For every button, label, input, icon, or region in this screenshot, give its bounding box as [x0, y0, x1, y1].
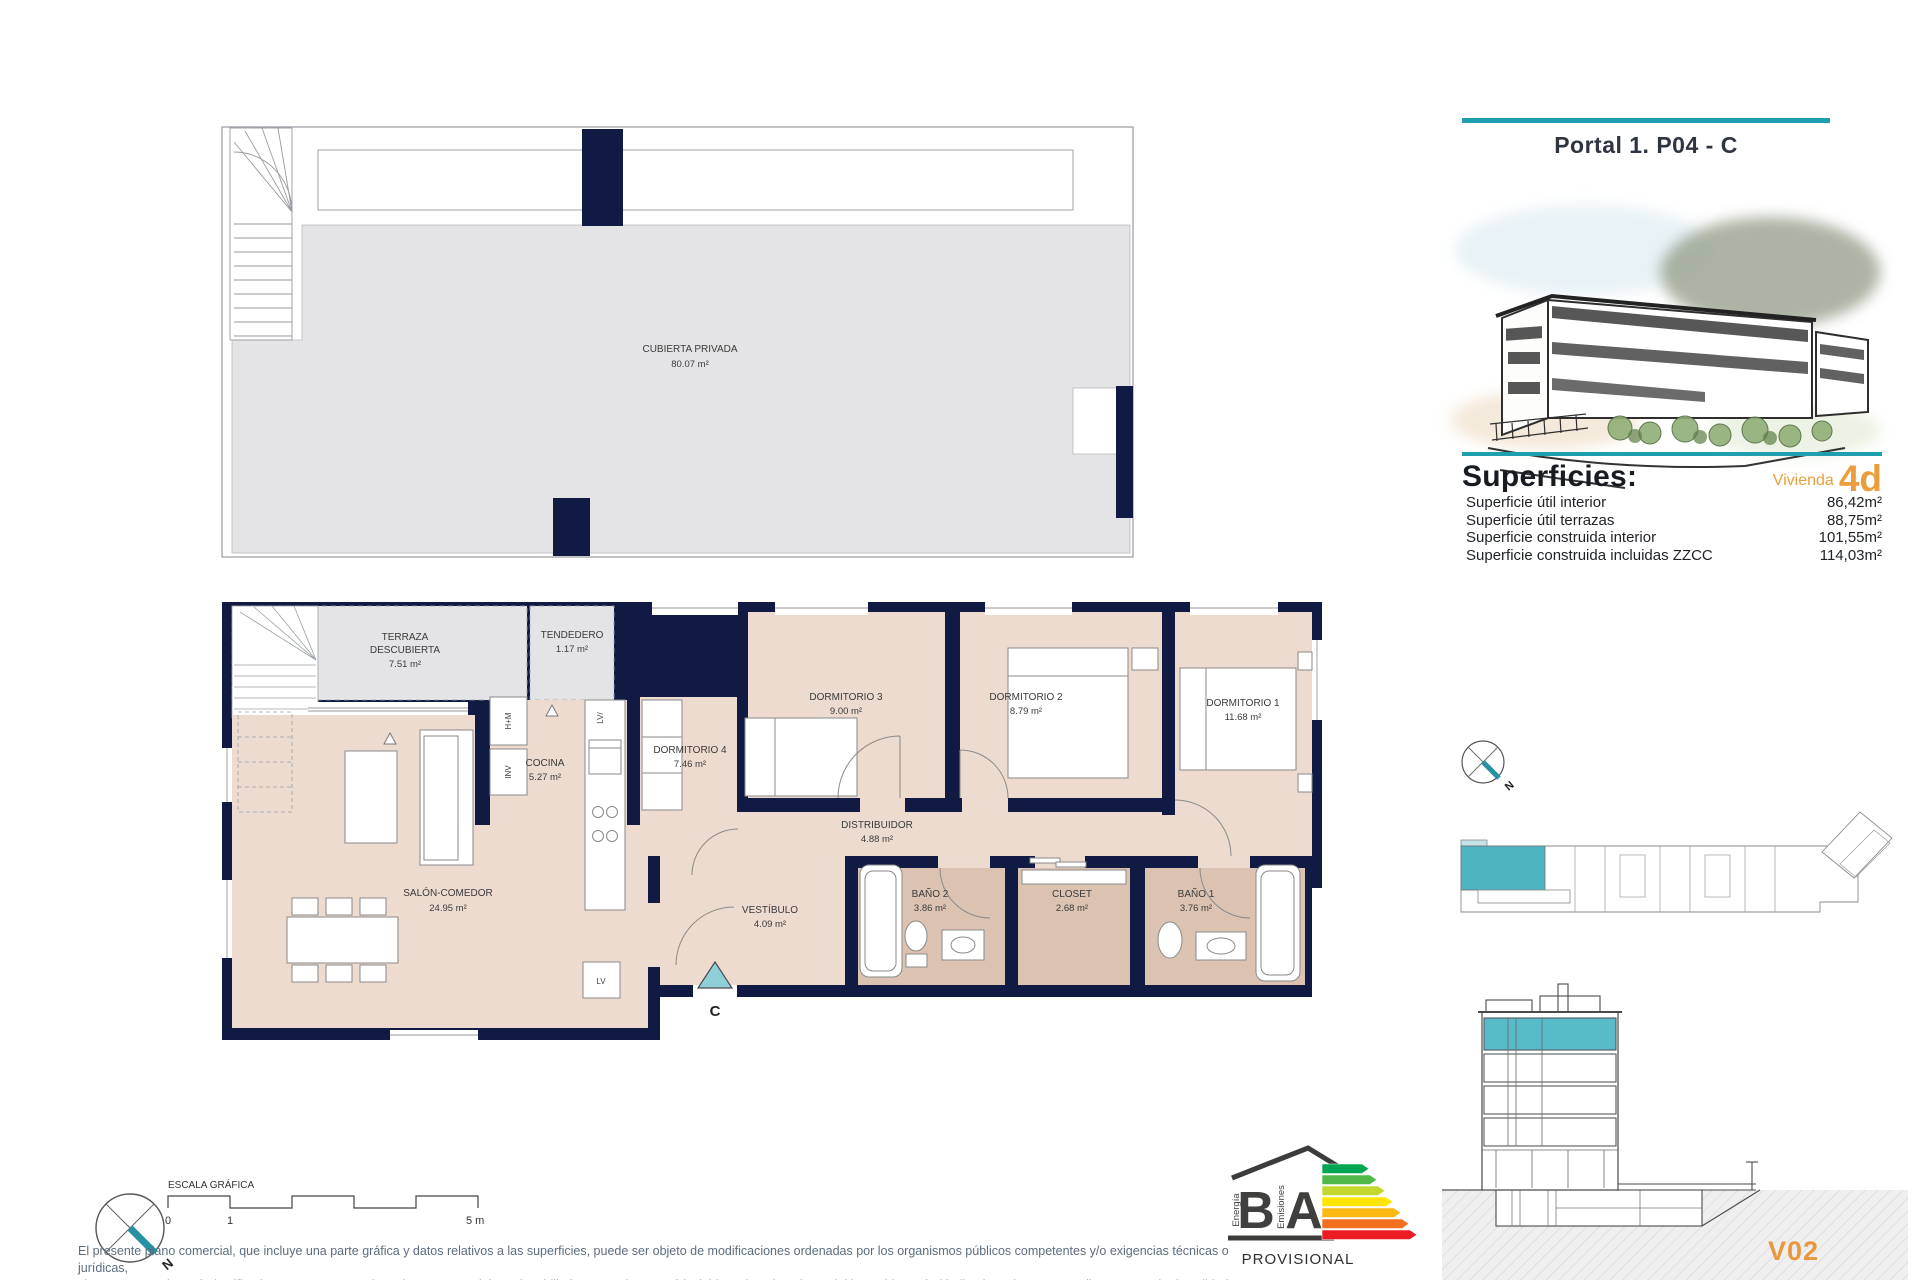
energy-emisiones-label: Emisiones	[1276, 1185, 1287, 1229]
key-plan	[1461, 812, 1892, 912]
label-salon: SALÓN-COMEDOR	[403, 886, 492, 899]
lv-label: LV	[596, 977, 606, 986]
sketch-gable-face	[1502, 300, 1548, 435]
area-terraza: 7.51 m²	[389, 659, 421, 670]
energy-letter-b: B	[1237, 1182, 1275, 1240]
sink-bano2	[942, 930, 984, 960]
superficies-row: Superficie construida incluidas ZZCC 114…	[1462, 547, 1882, 565]
lv-top-label: LV/	[596, 712, 605, 724]
energy-arrow-1	[1322, 1164, 1369, 1174]
scale-0: 0	[165, 1215, 171, 1227]
area-cocina: 5.27 m²	[529, 772, 561, 783]
building-section	[1442, 984, 1908, 1280]
fridge-icon	[589, 740, 621, 774]
energy-energia-label: Energía	[1231, 1193, 1242, 1227]
label-dormitorio4: DORMITORIO 4	[653, 745, 727, 756]
roof-private-deck	[232, 225, 1130, 553]
coffee-table	[345, 751, 397, 843]
vivienda-code: 4d	[1839, 463, 1882, 494]
label-closet: CLOSET	[1052, 889, 1092, 900]
building-illustration	[1450, 205, 1880, 488]
roof-wall-block-right	[1116, 386, 1133, 518]
energy-arrow-2	[1322, 1175, 1377, 1185]
superficies-panel: Superficies: Vivienda 4d Superficie útil…	[1462, 452, 1882, 564]
roof-wall-block-bottom	[553, 498, 590, 556]
area-dormitorio1: 11.68 m²	[1225, 712, 1262, 723]
energy-arrow-4	[1322, 1197, 1393, 1207]
vivienda-label: Vivienda	[1773, 472, 1834, 494]
area-distribuidor: 4.88 m²	[861, 834, 893, 845]
inv-label: INV	[504, 765, 513, 779]
scale-1: 1	[227, 1215, 233, 1227]
vivienda-tag: Vivienda 4d	[1773, 463, 1882, 494]
sup-label-0: Superficie útil interior	[1462, 494, 1606, 512]
plan-drawing: CUBIERTA PRIVADA 80.07 m²	[0, 0, 1920, 1280]
superficies-row: Superficie útil terrazas 88,75m²	[1462, 512, 1882, 530]
sink-bano1	[1196, 932, 1246, 960]
key-plan-balcony	[1478, 890, 1570, 903]
disclaimer-line-1: El presente plano comercial, que incluye…	[78, 1243, 1273, 1277]
room-distribuidor	[640, 812, 1162, 856]
area-dormitorio2: 8.79 m²	[1010, 706, 1042, 717]
room-closet	[1018, 868, 1130, 985]
energy-arrow-7	[1322, 1230, 1417, 1240]
bed-dorm3	[745, 718, 857, 796]
sup-value-3: 114,03m²	[1820, 547, 1882, 565]
floor-stairs	[232, 606, 318, 718]
nightstand-dorm2	[1132, 648, 1158, 670]
energy-letter-a: A	[1285, 1182, 1323, 1240]
sup-label-3: Superficie construida incluidas ZZCC	[1462, 547, 1713, 565]
label-terraza-2: DESCUBIERTA	[370, 645, 441, 656]
superficies-header: Superficies: Vivienda 4d	[1462, 460, 1882, 494]
energy-arrow-6	[1322, 1219, 1409, 1229]
label-vestibulo: VESTÍBULO	[742, 903, 798, 916]
label-bano1: BAÑO 1	[1178, 887, 1215, 900]
label-dormitorio3: DORMITORIO 3	[809, 692, 883, 703]
plan-sheet: CUBIERTA PRIVADA 80.07 m²	[0, 0, 1920, 1280]
superficies-accent-bar	[1462, 452, 1882, 456]
label-dormitorio2: DORMITORIO 2	[989, 692, 1063, 703]
key-plan-unit-highlight	[1461, 846, 1545, 890]
superficies-heading: Superficies:	[1462, 460, 1637, 494]
roof-stairs	[230, 128, 292, 340]
section-roof-details	[1478, 984, 1622, 1012]
energy-arrow-5	[1322, 1208, 1401, 1218]
superficies-row: Superficie útil interior 86,42m²	[1462, 494, 1882, 512]
sidebar-compass-icon: N	[1462, 741, 1517, 793]
plan-code: V02	[1768, 1236, 1819, 1267]
label-cocina: COCINA	[526, 758, 565, 769]
scale-bar: ESCALA GRÁFICA 0 1 5 m	[165, 1178, 484, 1227]
toilet-bano2	[905, 921, 927, 951]
hm-label: H+M	[504, 712, 513, 729]
floor-plan: LV/ H+M INV LV	[222, 602, 1322, 1040]
kitchen-counter	[585, 700, 625, 910]
legal-disclaimer: El presente plano comercial, que incluye…	[78, 1243, 1273, 1280]
area-closet: 2.68 m²	[1056, 903, 1088, 914]
sup-value-0: 86,42m²	[1827, 494, 1882, 512]
area-vestibulo: 4.09 m²	[754, 919, 786, 930]
label-distribuidor: DISTRIBUIDOR	[841, 820, 913, 831]
area-tendedero: 1.17 m²	[556, 644, 588, 655]
header-accent-bar	[1462, 118, 1830, 123]
sup-value-2: 101,55m²	[1819, 529, 1882, 547]
sup-value-1: 88,75m²	[1827, 512, 1882, 530]
page-title: Portal 1. P04 - C	[1462, 132, 1830, 159]
scale-title: ESCALA GRÁFICA	[168, 1178, 254, 1191]
energy-arrows	[1322, 1164, 1417, 1240]
area-dormitorio4: 7.46 m²	[674, 759, 706, 770]
area-salon: 24.95 m²	[429, 903, 467, 914]
roof-notch	[1073, 388, 1118, 454]
entry-label: C	[710, 1003, 721, 1020]
scale-5m: 5 m	[466, 1215, 484, 1227]
scale-bar-steps	[168, 1196, 478, 1208]
sofa-seat	[424, 736, 458, 860]
label-bano2: BAÑO 2	[912, 887, 949, 900]
area-dormitorio3: 9.00 m²	[830, 706, 862, 717]
area-bano2: 3.86 m²	[914, 903, 946, 914]
label-terraza-1: TERRAZA	[382, 632, 429, 643]
sup-label-1: Superficie útil terrazas	[1462, 512, 1614, 530]
roof-top-band	[318, 150, 1073, 210]
bathtub-bano1	[1256, 865, 1300, 981]
roof-plan: CUBIERTA PRIVADA 80.07 m²	[222, 127, 1133, 557]
roof-wall-block-top	[582, 129, 623, 226]
superficies-row: Superficie construida interior 101,55m²	[1462, 529, 1882, 547]
label-tendedero: TENDEDERO	[541, 630, 604, 641]
roof-room-area: 80.07 m²	[671, 359, 709, 370]
roof-room-label: CUBIERTA PRIVADA	[642, 344, 737, 355]
sidebar-compass-north: N	[1503, 779, 1517, 793]
kitchen-fixtures: LV/	[585, 700, 625, 910]
room-vestibulo	[660, 856, 845, 985]
sup-label-2: Superficie construida interior	[1462, 529, 1656, 547]
closet-shelf	[1022, 870, 1126, 884]
toilet-bano1	[1158, 922, 1182, 958]
portal-header: Portal 1. P04 - C	[1462, 118, 1830, 159]
dining-table	[287, 917, 398, 963]
area-bano1: 3.76 m²	[1180, 903, 1212, 914]
label-dormitorio1: DORMITORIO 1	[1206, 698, 1280, 709]
energy-arrow-3	[1322, 1186, 1385, 1196]
section-highlighted-floor	[1484, 1018, 1616, 1050]
